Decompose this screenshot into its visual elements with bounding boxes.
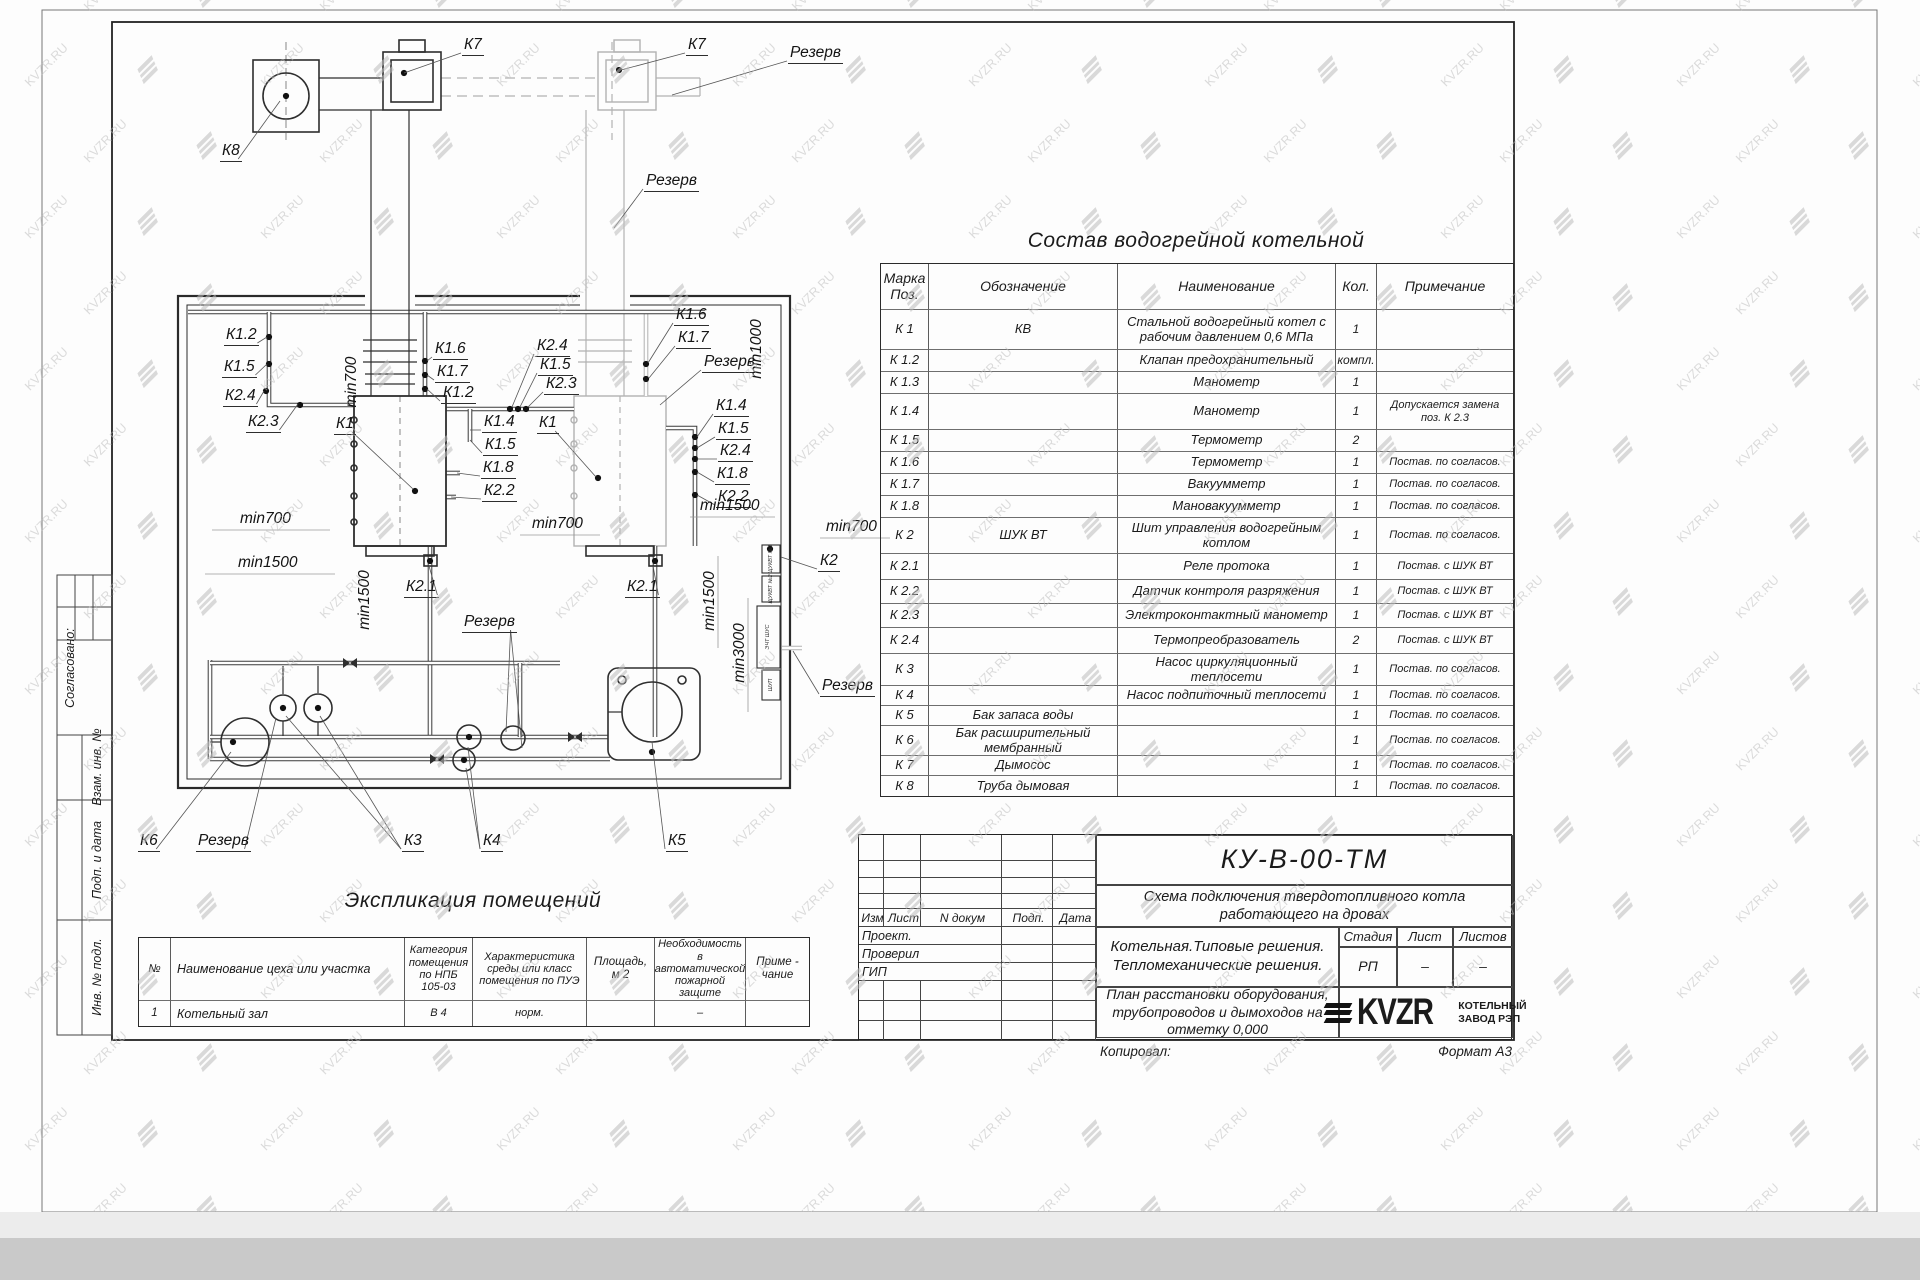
cell xyxy=(929,452,1118,474)
cell: К 1.2 xyxy=(881,350,929,372)
cell: ШУК ВТ xyxy=(929,518,1118,554)
empty-cell xyxy=(859,1021,884,1041)
cell xyxy=(929,554,1118,580)
role-cell: Проверил xyxy=(859,945,1002,963)
rev-header-cell: Дата xyxy=(1053,909,1096,927)
empty-cell xyxy=(1053,1021,1096,1041)
cell: К 3 xyxy=(881,654,929,686)
cell: Постав. с ШУК ВТ xyxy=(1377,604,1513,628)
table-row: К 2.2Датчик контроля разряжения1Постав. … xyxy=(881,580,1513,604)
table-row: К 2.3Электроконтактный манометр1Постав. … xyxy=(881,604,1513,628)
cell: Манометр xyxy=(1118,394,1336,430)
cell xyxy=(929,474,1118,496)
cell xyxy=(929,654,1118,686)
cell xyxy=(1118,756,1336,776)
equipment-table: Марка Поз.ОбозначениеНаименованиеКол.При… xyxy=(880,263,1514,797)
table-row: К 6Бак расширительный мембранный1Постав.… xyxy=(881,726,1513,756)
table-row: К 1.5Термометр2 xyxy=(881,430,1513,452)
empty-cell xyxy=(1002,1001,1053,1021)
empty-cell xyxy=(884,894,921,909)
cell: Постав. с ШУК ВТ xyxy=(1377,580,1513,604)
empty-cell xyxy=(859,894,884,909)
cell: Постав. с ШУК ВТ xyxy=(1377,628,1513,654)
table-row: К 8Труба дымовая1Постав. по согласов. xyxy=(881,776,1513,796)
stage-header-cell: Листов xyxy=(1453,927,1513,947)
kvzr-logo-caption: КОТЕЛЬНЫЙ ЗАВОД РЭП xyxy=(1458,1000,1526,1024)
cell xyxy=(1118,706,1336,726)
empty-cell xyxy=(1002,878,1053,894)
cell: 2 xyxy=(1336,628,1377,654)
cell xyxy=(1377,430,1513,452)
table-row: №Наименование цеха или участкаКатегория … xyxy=(139,938,809,1001)
empty-cell xyxy=(1053,835,1096,861)
stamp-agreed: Согласовано: xyxy=(63,628,77,708)
empty-cell xyxy=(921,835,1002,861)
cell: 1 xyxy=(1336,452,1377,474)
empty-cell xyxy=(1002,835,1053,861)
stamp-podp-data: Подп. и дата xyxy=(90,821,104,899)
valve-symbols xyxy=(343,658,582,764)
empty-cell xyxy=(921,1001,1002,1021)
dimension-lines xyxy=(205,517,890,712)
cell: К 4 xyxy=(881,686,929,706)
table-row: К 1КВСтальной водогрейный котел с рабочи… xyxy=(881,310,1513,350)
empty-cell xyxy=(1002,981,1053,1001)
cell xyxy=(929,628,1118,654)
empty-cell xyxy=(1053,927,1096,945)
cell: норм. xyxy=(473,1001,587,1026)
table-row: К 1.4Манометр1Допускается замена поз. К … xyxy=(881,394,1513,430)
cell: Постав. по согласов. xyxy=(1377,686,1513,706)
stamp-inv-podl: Инв. № подл. xyxy=(90,938,104,1016)
cell: Категория помещения по НПБ 105-03 xyxy=(405,938,473,1001)
empty-cell xyxy=(884,1021,921,1041)
empty-cell xyxy=(921,861,1002,878)
cell: К 7 xyxy=(881,756,929,776)
table-row: К 1.8Мановакуумметр1Постав. по согласов. xyxy=(881,496,1513,518)
chimney-ducts xyxy=(210,42,622,742)
cell xyxy=(929,372,1118,394)
cell: Постав. по согласов. xyxy=(1377,474,1513,496)
cell xyxy=(1118,726,1336,756)
empty-cell xyxy=(921,878,1002,894)
cell: Постав. по согласов. xyxy=(1377,452,1513,474)
cell: КВ xyxy=(929,310,1118,350)
stage-value-cell: – xyxy=(1453,947,1513,987)
cell: Постав. по согласов. xyxy=(1377,726,1513,756)
cell xyxy=(1118,776,1336,796)
cell: Обозначение xyxy=(929,264,1118,310)
cell: Бак расширительный мембранный xyxy=(929,726,1118,756)
cell: К 5 xyxy=(881,706,929,726)
table-row: К 4Насос подпиточный теплосети1Постав. п… xyxy=(881,686,1513,706)
rooms-table: №Наименование цеха или участкаКатегория … xyxy=(138,937,810,1027)
cell: 1 xyxy=(1336,654,1377,686)
cell: Термометр xyxy=(1118,430,1336,452)
kvzr-logo-icon xyxy=(1325,1000,1351,1025)
cell: Постав. по согласов. xyxy=(1377,654,1513,686)
empty-cell xyxy=(859,1001,884,1021)
cell: Необходимость в автоматической пожарной … xyxy=(655,938,746,1001)
empty-cell xyxy=(921,894,1002,909)
empty-cell xyxy=(884,1001,921,1021)
cell: К 1.5 xyxy=(881,430,929,452)
cell: 1 xyxy=(1336,554,1377,580)
rev-header-cell: Изм xyxy=(859,909,884,927)
cell xyxy=(587,1001,655,1026)
cell: Клапан предохранительный xyxy=(1118,350,1336,372)
cell: Постав. по согласов. xyxy=(1377,756,1513,776)
cell: Реле протока xyxy=(1118,554,1336,580)
revision-grid: ИзмЛистN докумПодп.ДатаПроект.ПроверилГИ… xyxy=(859,835,1096,1038)
cell: К 2.2 xyxy=(881,580,929,604)
table-row: К 1.2Клапан предохранительныйкомпл. xyxy=(881,350,1513,372)
cell: 1 xyxy=(1336,394,1377,430)
cell: Термометр xyxy=(1118,452,1336,474)
cell: К 1 xyxy=(881,310,929,350)
doc-subtitle-cell: Схема подключения твердотопливного котла… xyxy=(1096,885,1513,927)
cell: К 1.8 xyxy=(881,496,929,518)
cell: Электроконтактный манометр xyxy=(1118,604,1336,628)
empty-cell xyxy=(884,878,921,894)
drawing-sheet: Согласовано: Взам. инв. № Подп. и дата И… xyxy=(0,0,1920,1280)
cell xyxy=(929,686,1118,706)
cell: 1 xyxy=(1336,310,1377,350)
stage-header-cell: Лист xyxy=(1397,927,1453,947)
empty-cell xyxy=(1053,963,1096,981)
empty-cell xyxy=(859,878,884,894)
cell: Кол. xyxy=(1336,264,1377,310)
cell: К 1.6 xyxy=(881,452,929,474)
empty-cell xyxy=(859,835,884,861)
table-row: К 2ШУК ВТШит управления водогрейным котл… xyxy=(881,518,1513,554)
page-bottom-strip xyxy=(0,1212,1920,1238)
cell: Шит управления водогрейным котлом xyxy=(1118,518,1336,554)
cell: К 1.3 xyxy=(881,372,929,394)
cell xyxy=(1377,350,1513,372)
cell xyxy=(929,580,1118,604)
empty-cell xyxy=(921,1021,1002,1041)
cell xyxy=(929,604,1118,628)
cell: К 1.4 xyxy=(881,394,929,430)
cell: Марка Поз. xyxy=(881,264,929,310)
role-cell: ГИП xyxy=(859,963,1002,981)
table-row: К 3Насос циркуляционный теплосети1Постав… xyxy=(881,654,1513,686)
cell: Дымосос xyxy=(929,756,1118,776)
cell: В 4 xyxy=(405,1001,473,1026)
empty-cell xyxy=(1002,963,1053,981)
cell: – xyxy=(655,1001,746,1026)
project-cell: Котельная.Типовые решения. Тепломеханиче… xyxy=(1096,927,1339,987)
table-row: К 1.6Термометр1Постав. по согласов. xyxy=(881,452,1513,474)
empty-cell xyxy=(1002,894,1053,909)
cell: Характеристика среды или класс помещения… xyxy=(473,938,587,1001)
cell: Труба дымовая xyxy=(929,776,1118,796)
cell: 1 xyxy=(1336,474,1377,496)
empty-cell xyxy=(884,981,921,1001)
format-label: Формат А3 xyxy=(1380,1044,1512,1059)
cell: Допускается замена поз. К 2.3 xyxy=(1377,394,1513,430)
cell: 1 xyxy=(1336,496,1377,518)
table-row: К 1.7Вакуумметр1Постав. по согласов. xyxy=(881,474,1513,496)
cell xyxy=(746,1001,809,1026)
empty-cell xyxy=(1053,945,1096,963)
cell: № xyxy=(139,938,171,1001)
empty-cell xyxy=(1002,945,1053,963)
cell xyxy=(1377,372,1513,394)
cell: 1 xyxy=(1336,518,1377,554)
cell: Датчик контроля разряжения xyxy=(1118,580,1336,604)
cell: 1 xyxy=(1336,372,1377,394)
empty-cell xyxy=(921,981,1002,1001)
cell: К 2.1 xyxy=(881,554,929,580)
cell: 2 xyxy=(1336,430,1377,452)
rev-header-cell: N докум xyxy=(921,909,1002,927)
cell: Стальной водогрейный котел с рабочим дав… xyxy=(1118,310,1336,350)
cell: Примечание xyxy=(1377,264,1513,310)
kvzr-logo-text: KVZR xyxy=(1357,989,1433,1035)
cell: Постав. по согласов. xyxy=(1377,706,1513,726)
page-bottom-band xyxy=(0,1238,1920,1280)
cell: компл. xyxy=(1336,350,1377,372)
cell: 1 xyxy=(1336,580,1377,604)
cell: 1 xyxy=(1336,604,1377,628)
table-row: К 7Дымосос1Постав. по согласов. xyxy=(881,756,1513,776)
empty-cell xyxy=(1053,861,1096,878)
rev-header-cell: Лист xyxy=(884,909,921,927)
table-row: К 5Бак запаса воды1Постав. по согласов. xyxy=(881,706,1513,726)
cell: 1 xyxy=(1336,776,1377,796)
empty-cell xyxy=(1053,878,1096,894)
cell: 1 xyxy=(1336,706,1377,726)
stage-header-cell: Стадия xyxy=(1339,927,1397,947)
title-block: ИзмЛистN докумПодп.ДатаПроект.ПроверилГИ… xyxy=(858,834,1512,1040)
leader-lines xyxy=(156,53,819,849)
cell: К 2.4 xyxy=(881,628,929,654)
cell: Постав. по согласов. xyxy=(1377,518,1513,554)
cell: Вакуумметр xyxy=(1118,474,1336,496)
cell: 1 xyxy=(1336,726,1377,756)
cell: К 6 xyxy=(881,726,929,756)
cell: Бак запаса воды xyxy=(929,706,1118,726)
cell: Термопреобразователь xyxy=(1118,628,1336,654)
cell: Постав. по согласов. xyxy=(1377,776,1513,796)
logo-cell: KVZR КОТЕЛЬНЫЙ ЗАВОД РЭП xyxy=(1339,987,1513,1038)
reserve-ducts xyxy=(441,42,700,546)
connection-dots xyxy=(230,67,773,763)
cell: К 2 xyxy=(881,518,929,554)
cell: К 2.3 xyxy=(881,604,929,628)
cell: 1 xyxy=(139,1001,171,1026)
table-row: Марка Поз.ОбозначениеНаименованиеКол.При… xyxy=(881,264,1513,310)
cell: Постав. по согласов. xyxy=(1377,496,1513,518)
table-row: К 2.4Термопреобразователь2Постав. с ШУК … xyxy=(881,628,1513,654)
cell: Наименование цеха или участка xyxy=(171,938,405,1001)
empty-cell xyxy=(1002,861,1053,878)
role-cell: Проект. xyxy=(859,927,1002,945)
empty-cell xyxy=(859,861,884,878)
empty-cell xyxy=(1053,894,1096,909)
cell xyxy=(929,350,1118,372)
cell: Котельный зал xyxy=(171,1001,405,1026)
cell xyxy=(929,430,1118,452)
doc-number-cell: КУ-В-00-ТМ xyxy=(1096,835,1513,885)
empty-cell xyxy=(1053,981,1096,1001)
cell: К 8 xyxy=(881,776,929,796)
cell: 1 xyxy=(1336,686,1377,706)
cell: Насос циркуляционный теплосети xyxy=(1118,654,1336,686)
reserve-pipes xyxy=(646,312,802,648)
cell: Мановакуумметр xyxy=(1118,496,1336,518)
cell: Насос подпиточный теплосети xyxy=(1118,686,1336,706)
cell: Манометр xyxy=(1118,372,1336,394)
stamp-vzam-inv: Взам. инв. № xyxy=(90,728,104,805)
cell: 1 xyxy=(1336,756,1377,776)
empty-cell xyxy=(1053,1001,1096,1021)
copied-label: Копировал: xyxy=(1100,1044,1171,1059)
cell: Площадь, м 2 xyxy=(587,938,655,1001)
empty-cell xyxy=(884,835,921,861)
plan-title-cell: План расстановки оборудования, трубопров… xyxy=(1096,987,1339,1038)
rev-header-cell: Подп. xyxy=(1002,909,1053,927)
empty-cell xyxy=(1002,1021,1053,1041)
cell: К 1.7 xyxy=(881,474,929,496)
cell: Наименование xyxy=(1118,264,1336,310)
empty-cell xyxy=(1002,927,1053,945)
cell xyxy=(929,394,1118,430)
table-row: К 2.1Реле протока1Постав. с ШУК ВТ xyxy=(881,554,1513,580)
stage-value-cell: – xyxy=(1397,947,1453,987)
empty-cell xyxy=(859,981,884,1001)
cell xyxy=(929,496,1118,518)
empty-cell xyxy=(884,861,921,878)
cell xyxy=(1377,310,1513,350)
table-row: 1Котельный залВ 4норм.– xyxy=(139,1001,809,1026)
table-row: К 1.3Манометр1 xyxy=(881,372,1513,394)
stage-value-cell: РП xyxy=(1339,947,1397,987)
cell: Постав. с ШУК ВТ xyxy=(1377,554,1513,580)
cell: Приме - чание xyxy=(746,938,809,1001)
